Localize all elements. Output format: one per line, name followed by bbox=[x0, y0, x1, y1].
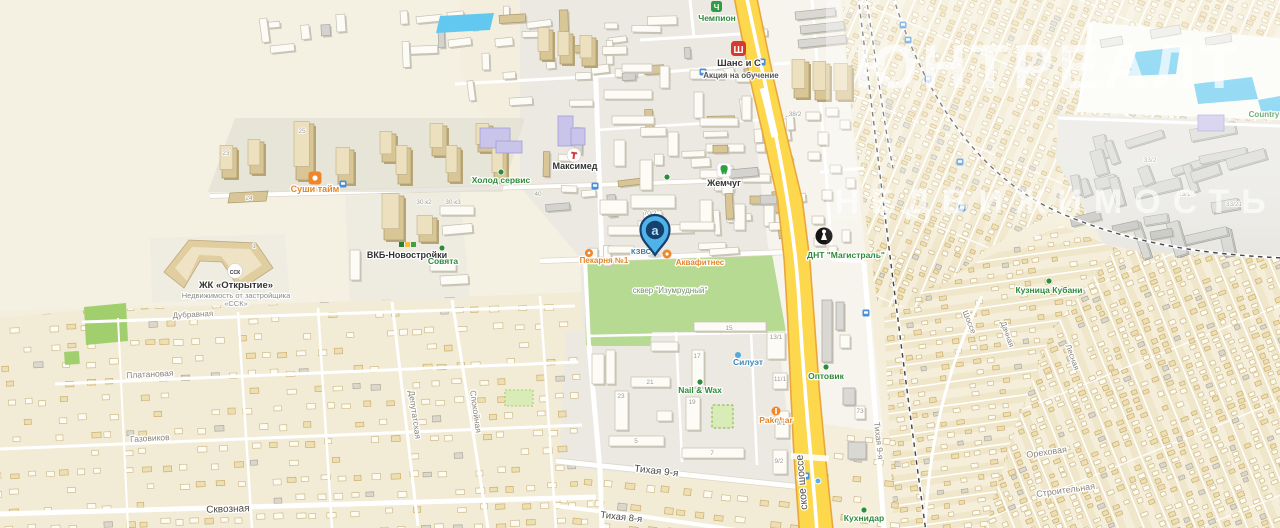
svg-text:ССК: ССК bbox=[230, 270, 241, 276]
svg-text:25: 25 bbox=[298, 128, 306, 135]
svg-text:38/2: 38/2 bbox=[789, 111, 802, 118]
svg-text:Оптовик: Оптовик bbox=[808, 371, 844, 381]
svg-text:Ч: Ч bbox=[714, 3, 720, 12]
svg-text:Аквафитнес: Аквафитнес bbox=[676, 258, 725, 267]
svg-text:Nail & Wax: Nail & Wax bbox=[678, 385, 722, 395]
svg-text:Максимед: Максимед bbox=[553, 161, 598, 171]
svg-text:Шанс и С: Шанс и С bbox=[717, 58, 761, 69]
svg-text:НЕДВИЖИМОСТЬ: НЕДВИЖИМОСТЬ bbox=[834, 183, 1277, 221]
svg-text:Кузница Кубани: Кузница Кубани bbox=[1015, 285, 1082, 295]
svg-text:ЖК «Открытие»: ЖК «Открытие» bbox=[198, 280, 273, 291]
svg-text:17: 17 bbox=[693, 353, 701, 360]
svg-text:23: 23 bbox=[617, 393, 625, 400]
svg-text:30 к2: 30 к2 bbox=[416, 199, 432, 206]
svg-text:7: 7 bbox=[710, 450, 714, 457]
svg-text:Жемчуг: Жемчуг bbox=[706, 178, 741, 188]
svg-text:Пекарня №1: Пекарня №1 bbox=[580, 256, 629, 265]
svg-text:9/1: 9/1 bbox=[776, 420, 785, 427]
svg-text:Чемпион: Чемпион bbox=[698, 13, 736, 23]
svg-text:Суши тайм: Суши тайм bbox=[291, 184, 340, 194]
svg-text:1: 1 bbox=[252, 243, 256, 250]
svg-text:Акция на обучение: Акция на обучение bbox=[703, 71, 779, 80]
svg-text:Холод сервис: Холод сервис bbox=[472, 175, 531, 185]
svg-text:21: 21 bbox=[646, 379, 654, 386]
svg-text:сквер "Изумрудный": сквер "Изумрудный" bbox=[633, 286, 708, 295]
svg-text:ЮНТРЕАЛТ: ЮНТРЕАЛТ bbox=[854, 33, 1242, 102]
svg-text:Силуэт: Силуэт bbox=[733, 357, 763, 367]
svg-text:Ш: Ш bbox=[733, 45, 743, 56]
svg-text:23: 23 bbox=[222, 150, 230, 157]
svg-text:Газовиков: Газовиков bbox=[130, 432, 171, 444]
svg-text:9/2: 9/2 bbox=[774, 458, 783, 465]
svg-text:40: 40 bbox=[534, 191, 542, 198]
svg-text:11/1: 11/1 bbox=[774, 376, 787, 383]
svg-text:Совята: Совята bbox=[428, 256, 459, 266]
svg-text:13/1: 13/1 bbox=[770, 334, 783, 341]
svg-text:Кухнидар: Кухнидар bbox=[844, 513, 884, 523]
svg-text:19: 19 bbox=[688, 399, 696, 406]
svg-text:24: 24 bbox=[245, 195, 253, 202]
svg-text:5: 5 bbox=[634, 438, 638, 445]
svg-text:15: 15 bbox=[725, 325, 733, 332]
svg-text:73: 73 bbox=[856, 408, 864, 415]
svg-text:30 к3: 30 к3 bbox=[445, 199, 461, 206]
svg-text:a: a bbox=[651, 223, 659, 238]
svg-text:«ССК»: «ССК» bbox=[224, 299, 248, 308]
svg-text:Сквозная: Сквозная bbox=[206, 503, 250, 516]
